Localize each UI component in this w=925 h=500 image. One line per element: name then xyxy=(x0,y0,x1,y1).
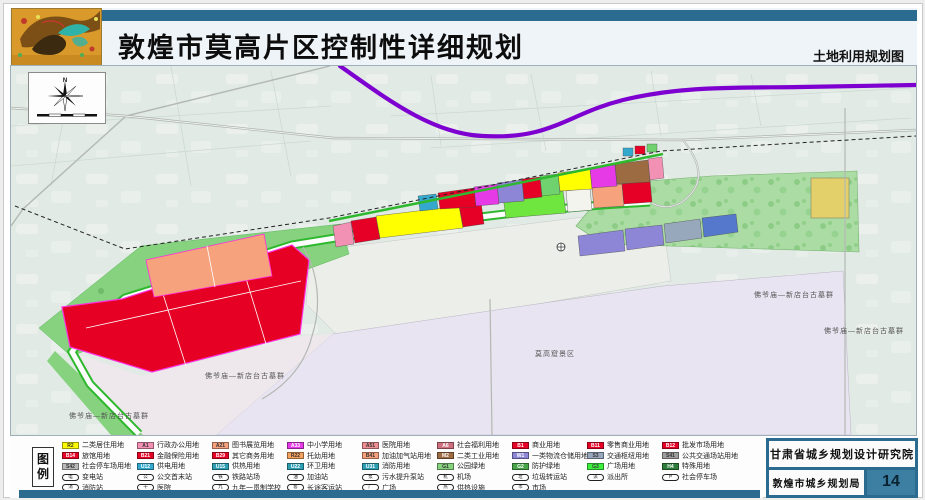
legend-grid: R2二类居住用地B14旅馆用地S42社会停车场用地电变电站消消防站A1行政办公用… xyxy=(62,441,737,492)
legend-item-label: 铁路站场 xyxy=(232,472,260,482)
legend-item-label: 环卫用地 xyxy=(307,461,335,471)
map-canvas xyxy=(11,66,916,435)
legend-item-label: 加油加气站用地 xyxy=(382,451,431,461)
legend-item-swatch: S3交通枢纽用地 xyxy=(587,452,662,461)
legend-item-label: 托幼用地 xyxy=(307,451,335,461)
legend-item-swatch: G3广场用地 xyxy=(587,462,662,471)
legend-column: B1商业用地W1一类物流仓储用地G2防护绿地垃垃圾转运站市市场 xyxy=(512,441,587,492)
page-number: 14 xyxy=(867,470,915,496)
legend-color-swatch: B29 xyxy=(212,452,229,459)
compass-rose: N xyxy=(28,72,106,124)
legend-item-label: 消防用地 xyxy=(382,461,410,471)
legend-color-swatch: B41 xyxy=(362,452,379,459)
legend-symbol-badge: 公 xyxy=(137,474,154,481)
facility-marker-icon xyxy=(557,243,565,251)
header-accent-bar xyxy=(100,10,917,21)
legend-item-label: 公交首末站 xyxy=(157,472,192,482)
legend-item-icon: 电变电站 xyxy=(62,473,137,482)
legend-item-swatch: S42社会停车场用地 xyxy=(62,462,137,471)
legend-color-swatch: A1 xyxy=(137,442,154,449)
mural-illustration xyxy=(12,9,101,65)
legend-color-swatch: U15 xyxy=(212,463,229,470)
legend-item-icon: 垃垃圾转运站 xyxy=(512,473,587,482)
legend-item-icon: 派派出所 xyxy=(587,473,662,482)
map-label: 佛爷庙—新店台古墓群 xyxy=(205,371,285,381)
legend-item-label: 其它商务用地 xyxy=(232,451,274,461)
page-title: 敦煌市莫高片区控制性详细规划 xyxy=(118,26,524,65)
legend-item-icon: 机机场 xyxy=(437,473,512,482)
legend-item-swatch: A21图书展览用地 xyxy=(212,441,287,450)
legend-color-swatch: G2 xyxy=(512,463,529,470)
legend-item-label: 零售商业用地 xyxy=(607,440,649,450)
legend-item-swatch: U15供热用地 xyxy=(212,462,287,471)
bureau-name: 敦煌市城乡规划局 xyxy=(769,470,864,496)
legend-symbol-badge: 电 xyxy=(62,474,79,481)
legend-item-label: 二类居住用地 xyxy=(82,440,124,450)
legend-item-swatch: M2二类工业用地 xyxy=(437,452,512,461)
legend-color-swatch: B21 xyxy=(137,452,154,459)
legend-symbol-badge: 垃 xyxy=(512,474,529,481)
legend-color-swatch: B1 xyxy=(512,442,529,449)
legend-item-label: 垃圾转运站 xyxy=(532,472,567,482)
legend-color-swatch: A33 xyxy=(287,442,304,449)
legend-item-swatch: A6社会福利用地 xyxy=(437,441,512,450)
legend-color-swatch: B11 xyxy=(587,442,604,449)
legend-item-swatch: U12供电用地 xyxy=(137,462,212,471)
legend-item-label: 一类物流仓储用地 xyxy=(532,451,588,461)
legend-symbol-badge: 派 xyxy=(587,474,604,481)
institute-name: 甘肃省城乡规划设计研究院 xyxy=(769,441,915,467)
legend-column: B12批发市场用地S41公共交通场站用地H4特殊用地P社会停车场 xyxy=(662,441,737,492)
legend-item-swatch: A1行政办公用地 xyxy=(137,441,212,450)
map-label: 佛爷庙—新店台古墓群 xyxy=(69,411,149,421)
legend-column: A33中小学用地R22托幼用地U22环卫用地油加油站客长途客运站 xyxy=(287,441,362,492)
legend-item-label: 图书展览用地 xyxy=(232,440,274,450)
map-label: 佛爷庙—新店台古墓群 xyxy=(824,326,904,336)
map-label: 佛爷庙—新店台古墓群 xyxy=(754,290,834,300)
special-parcel-tan xyxy=(811,178,849,218)
legend-item-icon: 公公交首末站 xyxy=(137,473,212,482)
legend-item-icon: 泵污水提升泵站 xyxy=(362,473,437,482)
plan-sheet: 敦煌市莫高片区控制性详细规划 土地利用规划图 xyxy=(3,3,923,498)
legend-color-swatch: G3 xyxy=(587,463,604,470)
legend-symbol-badge: 泵 xyxy=(362,474,379,481)
bottom-frame-bar xyxy=(19,490,760,498)
legend-panel: 图例 R2二类居住用地B14旅馆用地S42社会停车场用地电变电站消消防站A1行政… xyxy=(10,436,763,498)
dunhuang-mural-art xyxy=(11,8,102,66)
map-label: 莫高窟景区 xyxy=(535,349,575,359)
legend-item-label: 批发市场用地 xyxy=(682,440,724,450)
legend-color-swatch: M2 xyxy=(437,452,454,459)
map-type-label: 土地利用规划图 xyxy=(813,46,904,65)
legend-color-swatch: R22 xyxy=(287,452,304,459)
legend-title: 图例 xyxy=(32,447,54,487)
legend-item-label: 加油站 xyxy=(307,472,328,482)
legend-column: A6社会福利用地M2二类工业用地G1公园绿地机机场热供热设施 xyxy=(437,441,512,492)
legend-item-label: 特殊用地 xyxy=(682,461,710,471)
legend-color-swatch: A6 xyxy=(437,442,454,449)
legend-symbol-badge: P xyxy=(662,474,679,481)
legend-symbol-badge: 油 xyxy=(287,474,304,481)
legend-color-swatch: S3 xyxy=(587,452,604,459)
legend-item-swatch: W1一类物流仓储用地 xyxy=(512,452,587,461)
legend-item-swatch: H4特殊用地 xyxy=(662,462,737,471)
legend-color-swatch: S41 xyxy=(662,452,679,459)
legend-item-label: 金融保险用地 xyxy=(157,451,199,461)
legend-item-label: 公共交通场站用地 xyxy=(682,451,738,461)
legend-item-label: 中小学用地 xyxy=(307,440,342,450)
legend-item-swatch: S41公共交通场站用地 xyxy=(662,452,737,461)
legend-color-swatch: H4 xyxy=(662,463,679,470)
legend-column: R2二类居住用地B14旅馆用地S42社会停车场用地电变电站消消防站 xyxy=(62,441,137,492)
legend-symbol-badge: 机 xyxy=(437,474,454,481)
legend-column: A1行政办公用地B21金融保险用地U12供电用地公公交首末站十医院 xyxy=(137,441,212,492)
legend-item-label: 行政办公用地 xyxy=(157,440,199,450)
legend-item-swatch: B21金融保险用地 xyxy=(137,452,212,461)
scale-bar xyxy=(37,114,97,117)
legend-item-swatch: G1公园绿地 xyxy=(437,462,512,471)
map-area: N 莫高 xyxy=(10,65,917,436)
legend-item-swatch: R2二类居住用地 xyxy=(62,441,137,450)
legend-column: A21图书展览用地B29其它商务用地U15供热用地铁铁路站场九九年一贯制学校 xyxy=(212,441,287,492)
legend-color-swatch: A21 xyxy=(212,442,229,449)
legend-item-label: 二类工业用地 xyxy=(457,451,499,461)
legend-item-swatch: B14旅馆用地 xyxy=(62,452,137,461)
legend-item-icon: P社会停车场 xyxy=(662,473,737,482)
legend-item-label: 医院用地 xyxy=(382,440,410,450)
legend-item-label: 交通枢纽用地 xyxy=(607,451,649,461)
legend-color-swatch: A51 xyxy=(362,442,379,449)
legend-item-swatch: B41加油加气站用地 xyxy=(362,452,437,461)
legend-item-swatch: B29其它商务用地 xyxy=(212,452,287,461)
legend-item-label: 广场用地 xyxy=(607,461,635,471)
legend-color-swatch: R2 xyxy=(62,442,79,449)
legend-item-swatch: G2防护绿地 xyxy=(512,462,587,471)
legend-item-swatch: R22托幼用地 xyxy=(287,452,362,461)
legend-item-swatch: B1商业用地 xyxy=(512,441,587,450)
legend-column: B11零售商业用地S3交通枢纽用地G3广场用地派派出所 xyxy=(587,441,662,492)
legend-symbol-badge: 铁 xyxy=(212,474,229,481)
legend-item-label: 派出所 xyxy=(607,472,628,482)
legend-item-label: 社会停车场 xyxy=(682,472,717,482)
legend-column: A51医院用地B41加油加气站用地U31消防用地泵污水提升泵站广广场 xyxy=(362,441,437,492)
legend-item-label: 变电站 xyxy=(82,472,103,482)
legend-item-swatch: A51医院用地 xyxy=(362,441,437,450)
legend-color-swatch: B14 xyxy=(62,452,79,459)
legend-item-swatch: B12批发市场用地 xyxy=(662,441,737,450)
legend-color-swatch: U31 xyxy=(362,463,379,470)
legend-item-swatch: U31消防用地 xyxy=(362,462,437,471)
legend-color-swatch: B12 xyxy=(662,442,679,449)
legend-item-icon: 油加油站 xyxy=(287,473,362,482)
legend-color-swatch: S42 xyxy=(62,463,79,470)
legend-item-label: 旅馆用地 xyxy=(82,451,110,461)
legend-item-swatch: U22环卫用地 xyxy=(287,462,362,471)
legend-color-swatch: G1 xyxy=(437,463,454,470)
legend-item-swatch: A33中小学用地 xyxy=(287,441,362,450)
title-block: 甘肃省城乡规划设计研究院 敦煌市城乡规划局 14 xyxy=(766,438,918,498)
legend-color-swatch: W1 xyxy=(512,452,529,459)
legend-item-label: 防护绿地 xyxy=(532,461,560,471)
legend-item-label: 社会停车场用地 xyxy=(82,461,131,471)
legend-item-label: 商业用地 xyxy=(532,440,560,450)
legend-color-swatch: U12 xyxy=(137,463,154,470)
legend-item-label: 社会福利用地 xyxy=(457,440,499,450)
legend-color-swatch: U22 xyxy=(287,463,304,470)
legend-item-label: 供热用地 xyxy=(232,461,260,471)
legend-item-swatch: B11零售商业用地 xyxy=(587,441,662,450)
legend-item-icon: 铁铁路站场 xyxy=(212,473,287,482)
legend-item-label: 机场 xyxy=(457,472,471,482)
legend-item-label: 供电用地 xyxy=(157,461,185,471)
wind-rose xyxy=(47,81,83,111)
legend-item-label: 公园绿地 xyxy=(457,461,485,471)
legend-item-label: 污水提升泵站 xyxy=(382,472,424,482)
